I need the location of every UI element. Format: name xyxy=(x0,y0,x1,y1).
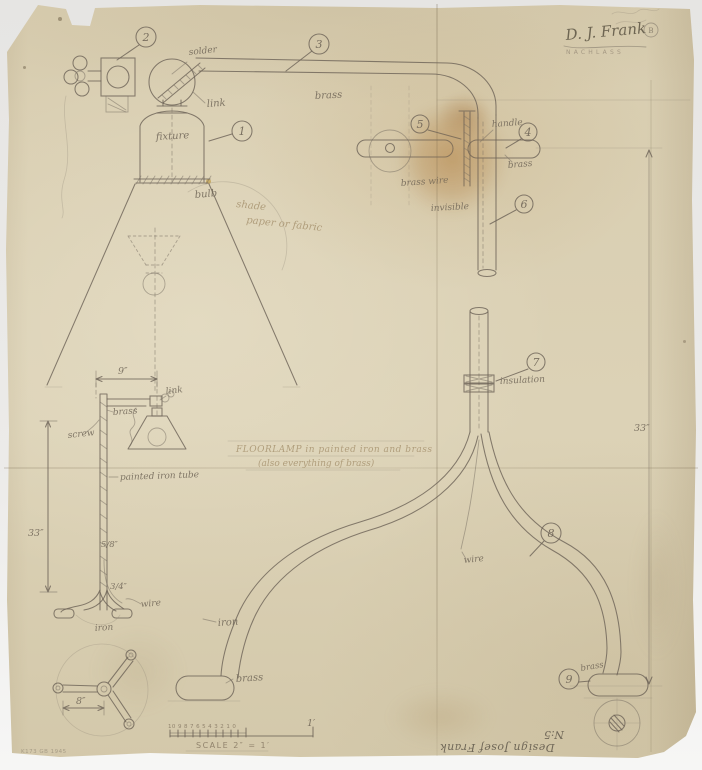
shade-label: shade xyxy=(236,199,267,213)
signature-text: D. J. Frank xyxy=(564,19,647,44)
label-leader-lines xyxy=(85,62,512,683)
overall-height-dimension xyxy=(646,150,652,684)
signature-mark: B xyxy=(648,27,653,35)
sketch-screw-label: screw xyxy=(67,428,95,441)
bulb-sketch xyxy=(128,228,180,392)
solder-label: solder xyxy=(188,45,218,58)
scale-label: SCALE 2″ = 1′ xyxy=(196,741,270,750)
part-number-4: 4 xyxy=(524,126,532,139)
wire-material-label: brass wire xyxy=(401,176,449,189)
shade-material-label: paper or fabric xyxy=(246,215,323,234)
sketch-arm-material-label: brass xyxy=(113,406,139,418)
sketch-link-label: link xyxy=(165,385,183,397)
ball-joint xyxy=(149,59,205,105)
scanned-pencil-drawing: 1 2 3 4 5 6 7 8 xyxy=(0,0,702,770)
link-label: link xyxy=(206,98,226,110)
part-callout-8: 8 xyxy=(530,523,561,556)
handle-label: handle xyxy=(492,118,524,130)
part-number-2: 2 xyxy=(142,31,150,44)
drawing-title-line1: FLOORLAMP in painted iron and brass xyxy=(235,445,432,455)
arm-material-label: brass xyxy=(315,90,343,102)
part-callout-1: 1 xyxy=(209,121,252,141)
wire-label: wire xyxy=(463,554,484,566)
handle-material-label: brass xyxy=(507,159,533,171)
model-number: N:5 xyxy=(544,728,565,741)
leg-material-label: iron xyxy=(217,617,238,629)
wire-run-label: invisible xyxy=(431,202,470,214)
foot-material-label: brass xyxy=(235,672,263,685)
joint-diameter-dimension: 3/4″ xyxy=(110,582,128,592)
tripod-top-view xyxy=(53,644,148,736)
design-credit: Design Josef Frank xyxy=(439,741,555,754)
stand-tube-upper xyxy=(478,115,496,277)
arm-length-dimension: 9″ xyxy=(118,366,128,377)
archive-stamp: K173 GB 1945 xyxy=(21,749,67,755)
foot-top-view xyxy=(594,698,640,750)
part-number-6: 6 xyxy=(521,198,528,211)
sketch-wire-label: wire xyxy=(140,598,161,610)
insulation-label: insulation xyxy=(500,375,546,387)
bulb-label: bulb xyxy=(194,188,217,201)
fixture-label: fixture xyxy=(155,130,190,143)
sketch-base-material-label: iron xyxy=(95,623,114,634)
scale-bar-numbers: 10 9 8 7 6 5 4 3 2 1 0 xyxy=(168,724,236,730)
part-number-1: 1 xyxy=(239,125,246,138)
part-number-7: 7 xyxy=(533,356,540,369)
part-number-3: 3 xyxy=(316,38,323,51)
part-number-8: 8 xyxy=(548,527,555,540)
part-number-9: 9 xyxy=(566,673,573,686)
base-spread-dimension: 8″ xyxy=(76,696,86,707)
socket-detail-view xyxy=(64,56,135,112)
pencil-linework: 1 2 3 4 5 6 7 8 xyxy=(0,0,702,770)
overall-height-dimension-text: 33″ xyxy=(634,423,650,434)
part-callout-5: 5 xyxy=(411,115,461,139)
sketch-tube-label: painted iron tube xyxy=(120,470,199,483)
foot-cap-material-label: brass xyxy=(580,660,605,674)
main-arm xyxy=(196,58,496,118)
stand-tube-lower xyxy=(470,308,488,433)
drawing-title-line2: (also everything of brass) xyxy=(258,458,375,469)
part-number-5: 5 xyxy=(417,118,424,131)
signature-flourish xyxy=(564,46,646,48)
estate-stamp: NACHLASS xyxy=(566,49,624,56)
part-callout-2: 2 xyxy=(117,27,156,60)
scale-foot-mark: 1′ xyxy=(307,718,316,729)
stand-height-dimension: 33″ xyxy=(28,528,44,539)
tube-diameter-dimension: 5/8″ xyxy=(101,540,119,550)
part-callout-3: 3 xyxy=(286,34,329,71)
